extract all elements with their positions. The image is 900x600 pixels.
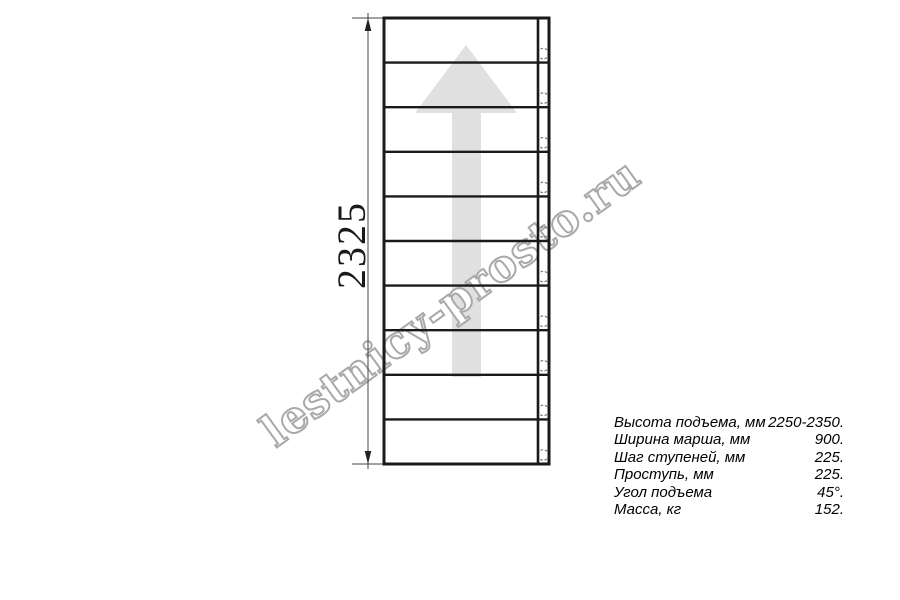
bolt-circle-icon — [538, 138, 549, 149]
bolt-circle-icon — [538, 227, 549, 238]
specs-table: Высота подъема, мм2250-2350.Ширина марша… — [614, 414, 844, 518]
dimension-arrowhead-bottom — [365, 451, 372, 464]
bolt-circle-icon — [538, 48, 549, 59]
spec-row: Шаг ступеней, мм225. — [614, 449, 844, 466]
spec-label: Высота подъема, мм — [614, 414, 766, 431]
bolt-circle-icon — [538, 93, 549, 104]
bolt-circle-icon — [538, 316, 549, 327]
spec-value: 2250-2350. — [768, 414, 844, 431]
spec-label: Проступь, мм — [614, 466, 714, 483]
spec-value: 225. — [815, 449, 844, 466]
steps-group — [384, 48, 549, 460]
bolt-circle-icon — [538, 450, 549, 461]
spec-value: 900. — [815, 431, 844, 448]
spec-label: Ширина марша, мм — [614, 431, 750, 448]
spec-value: 225. — [815, 466, 844, 483]
spec-row: Высота подъема, мм2250-2350. — [614, 414, 844, 431]
spec-row: Ширина марша, мм900. — [614, 431, 844, 448]
bolt-circle-icon — [538, 271, 549, 282]
spec-row: Угол подъема45°. — [614, 484, 844, 501]
dimension-arrowhead-top — [365, 18, 372, 31]
spec-label: Масса, кг — [614, 501, 681, 518]
bolt-circle-icon — [538, 182, 549, 193]
stairs-drawing-canvas: lestnicy-prosto.ru 2325 Высота подъема, … — [0, 0, 900, 600]
bolt-circle-icon — [538, 361, 549, 372]
spec-value: 152. — [815, 501, 844, 518]
spec-row: Проступь, мм225. — [614, 466, 844, 483]
spec-value: 45°. — [817, 484, 844, 501]
spec-label: Шаг ступеней, мм — [614, 449, 745, 466]
bolt-circle-icon — [538, 405, 549, 416]
dimension-label: 2325 — [329, 201, 374, 289]
spec-label: Угол подъема — [614, 484, 712, 501]
spec-row: Масса, кг152. — [614, 501, 844, 518]
